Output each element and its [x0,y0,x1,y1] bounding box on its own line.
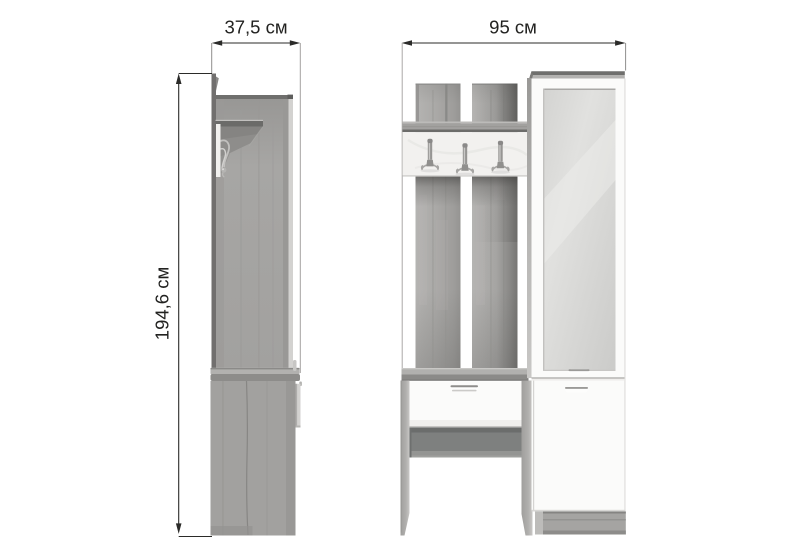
svg-text:37,5 см: 37,5 см [224,17,287,38]
svg-text:194,6 см: 194,6 см [152,267,173,340]
svg-text:95 см: 95 см [489,17,537,38]
